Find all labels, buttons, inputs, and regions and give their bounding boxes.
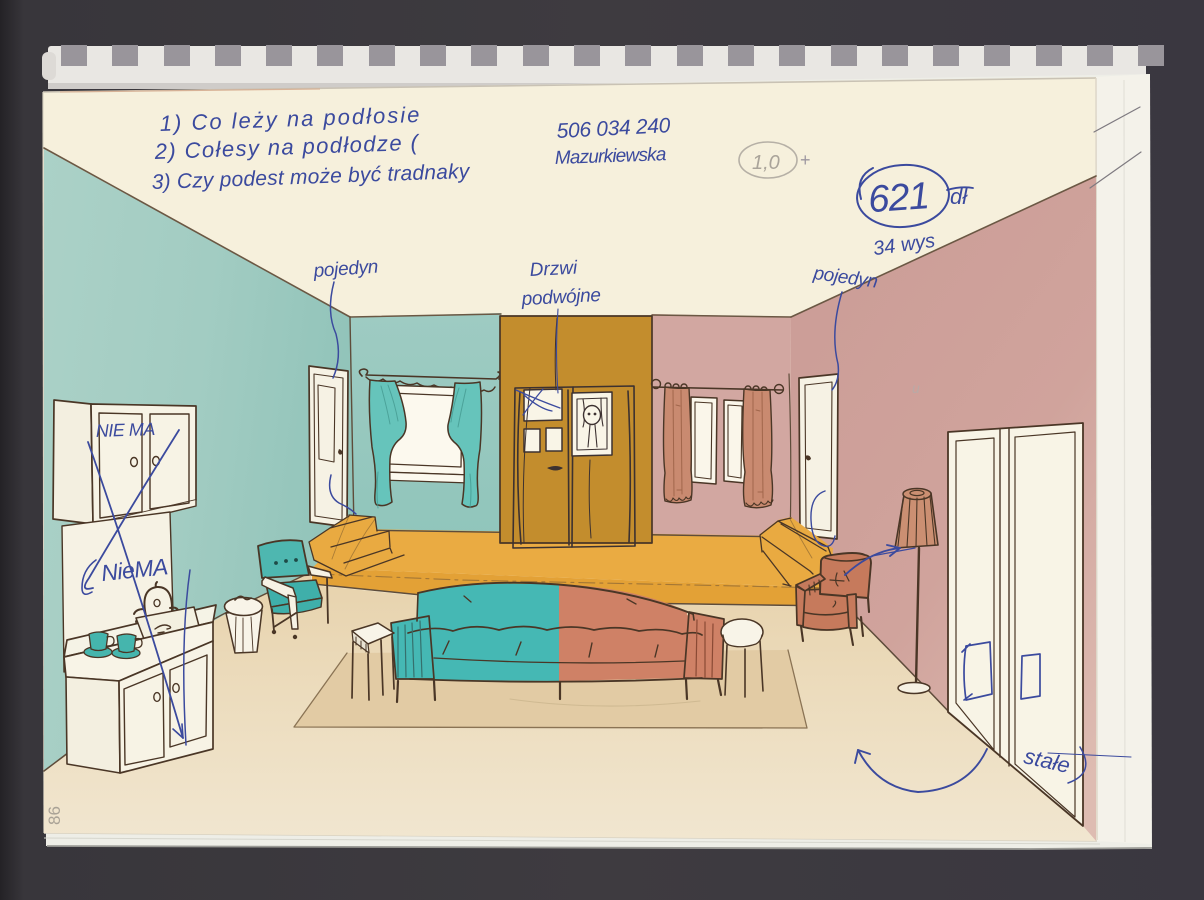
svg-text:u: u (912, 380, 920, 396)
svg-text:Drzwi: Drzwi (529, 257, 578, 280)
svg-text:podwójne: podwójne (520, 285, 601, 310)
svg-text:621: 621 (867, 175, 930, 221)
svg-text:Mazurkiewska: Mazurkiewska (554, 144, 666, 169)
svg-text:86: 86 (45, 806, 64, 825)
svg-text:NIE MA: NIE MA (95, 419, 155, 441)
svg-text:+: + (800, 150, 811, 170)
svg-text:1,0: 1,0 (752, 152, 780, 174)
